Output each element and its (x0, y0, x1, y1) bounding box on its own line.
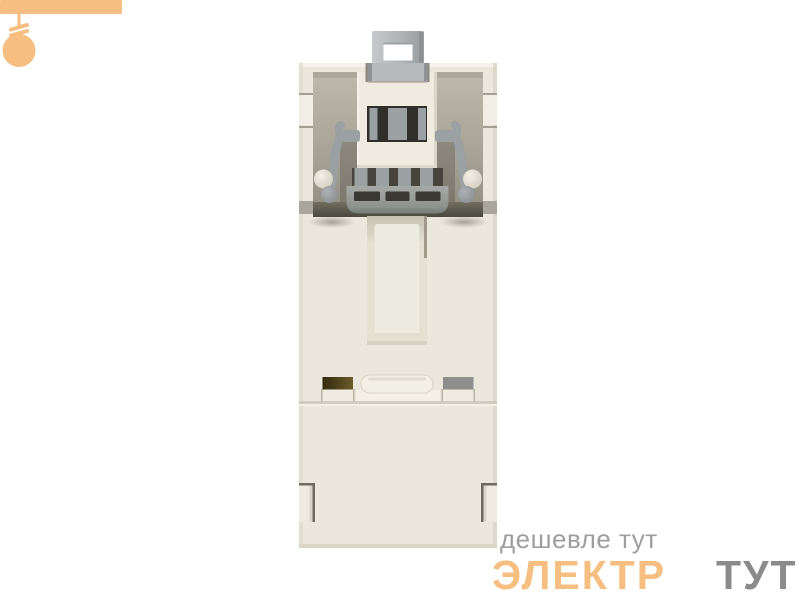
clip-tab-hole (384, 43, 413, 61)
lightbulb-icon (0, 0, 122, 70)
shading (366, 63, 368, 82)
contact-left (323, 377, 354, 390)
shading (368, 81, 428, 83)
bulb-cord (18, 13, 21, 26)
bulb-globe (3, 34, 36, 67)
shading (368, 378, 426, 381)
window-rib (370, 108, 378, 140)
shading (299, 404, 497, 406)
shading (357, 165, 437, 168)
shading (299, 93, 313, 95)
shading (484, 486, 487, 522)
clip-top-tab (372, 31, 424, 64)
window-rib (418, 108, 426, 140)
shading (310, 486, 313, 522)
din-module (299, 31, 497, 548)
contact-row (299, 375, 497, 406)
pedestal-right (443, 389, 474, 403)
clip-tab-inner (372, 63, 424, 81)
shading (384, 43, 413, 45)
pedestal-left (323, 389, 354, 403)
contact-right (443, 377, 474, 390)
shading (357, 72, 359, 168)
brand-underline-bar (0, 0, 122, 14)
shading (481, 483, 484, 522)
wall-step-left (299, 201, 313, 214)
arm-knob-right (458, 186, 475, 203)
pivot-ball-left (314, 170, 333, 189)
shading (419, 32, 423, 63)
wall-tab-left (299, 95, 313, 125)
clip-tooth (420, 168, 433, 188)
brand-name-second: ТУТ (716, 555, 798, 596)
shading (483, 126, 497, 128)
shading (299, 63, 303, 548)
shading (428, 63, 430, 82)
clip-plate-slot (386, 192, 410, 202)
shading (308, 216, 356, 228)
shading (424, 216, 427, 258)
shading (313, 483, 316, 522)
center-block (357, 63, 437, 168)
arm-knob-left (321, 186, 338, 203)
shading (493, 63, 497, 548)
window-rib (388, 108, 407, 140)
clip-tooth (355, 168, 368, 188)
channel-plateau (375, 224, 420, 336)
clip-plate-slot (354, 192, 380, 202)
wall-step-right (483, 201, 497, 214)
shading (483, 93, 497, 95)
shading (434, 72, 437, 168)
clip-tooth (398, 168, 411, 188)
shading (299, 544, 497, 548)
clip-tooth (376, 168, 389, 188)
shading (375, 333, 420, 336)
product-render-svg (0, 0, 800, 600)
shading (440, 216, 488, 228)
bulb-cap (11, 25, 27, 30)
step-edge (299, 401, 497, 404)
shading (299, 126, 313, 128)
pivot-ball-right (463, 170, 482, 189)
wall-tab-right (483, 95, 497, 125)
product-photo: дешевле тут ЭЛЕКТР ТУТ (0, 0, 800, 600)
brand-name-first: ЭЛЕКТР (492, 555, 666, 596)
shading (367, 341, 427, 345)
watermark-tagline: дешевле тут (500, 526, 658, 552)
clip-plate-slot (416, 192, 441, 202)
